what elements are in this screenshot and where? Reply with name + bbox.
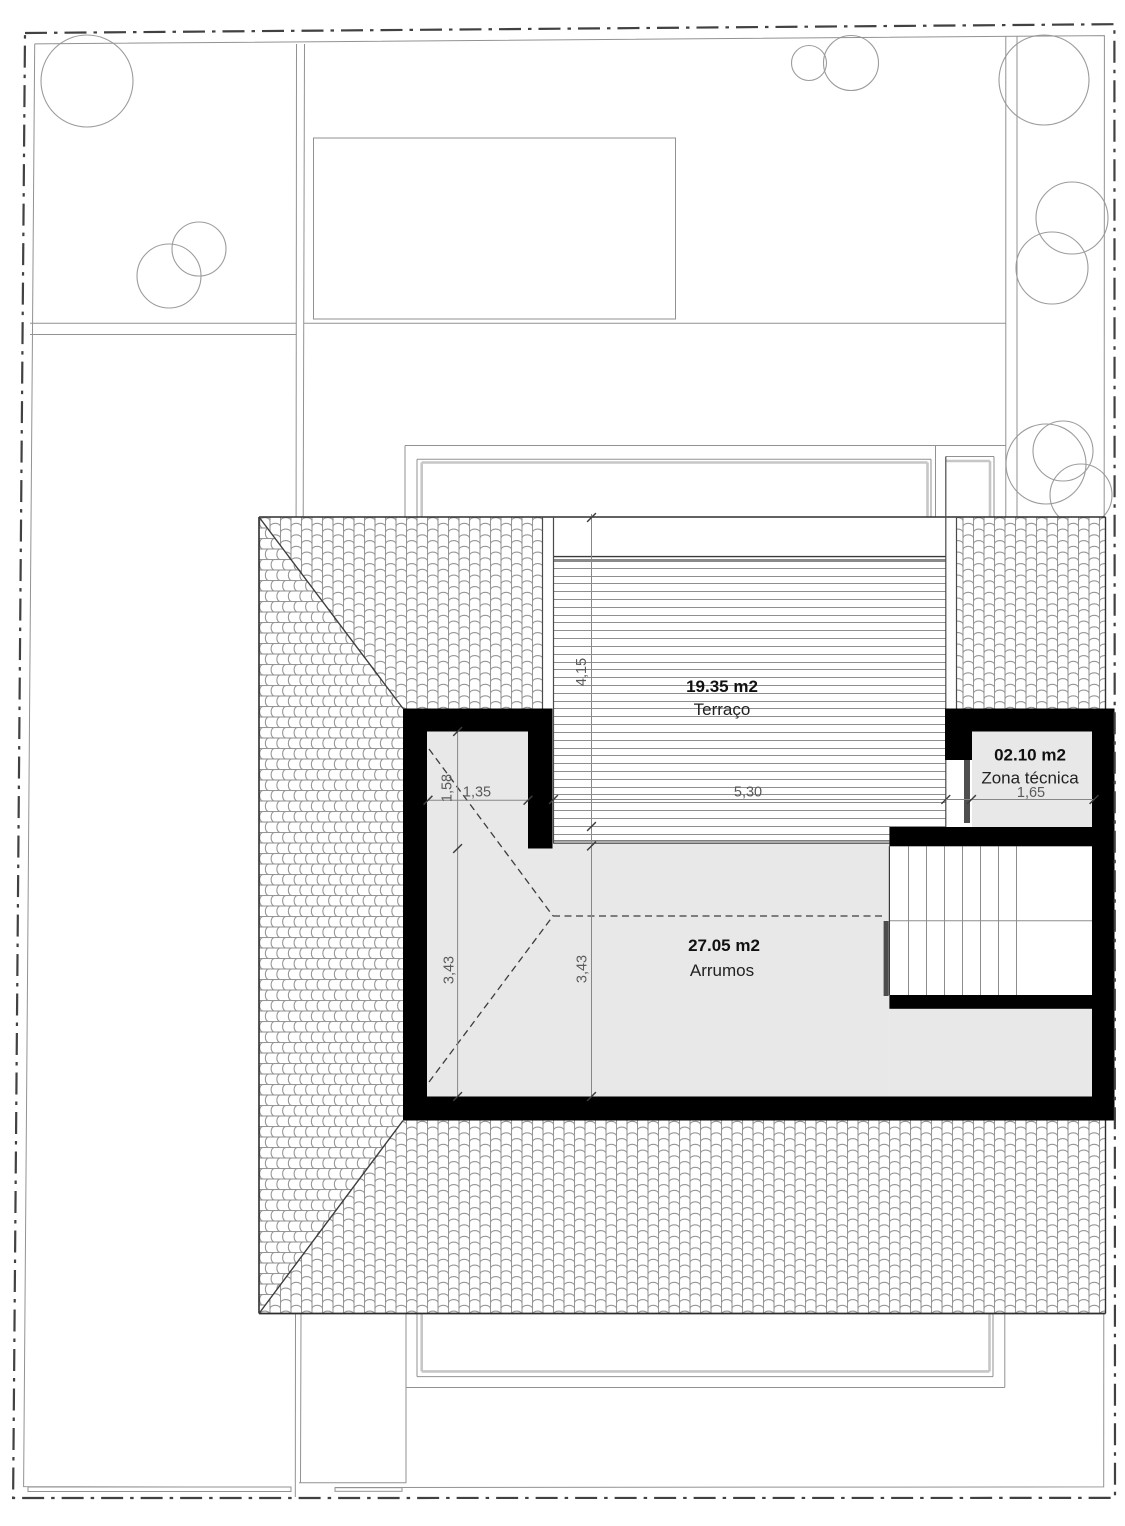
svg-text:27.05 m2: 27.05 m2 <box>688 936 760 955</box>
svg-text:5,30: 5,30 <box>734 785 762 801</box>
svg-text:19.35 m2: 19.35 m2 <box>686 677 758 696</box>
svg-text:Arrumos: Arrumos <box>690 961 754 980</box>
svg-text:3,43: 3,43 <box>442 956 458 984</box>
svg-text:02.10 m2: 02.10 m2 <box>994 746 1066 765</box>
svg-text:1,35: 1,35 <box>463 785 491 801</box>
svg-text:3,43: 3,43 <box>575 955 591 983</box>
svg-text:1,65: 1,65 <box>1017 785 1045 801</box>
svg-text:1,58: 1,58 <box>440 774 456 802</box>
svg-text:Terraço: Terraço <box>694 700 751 719</box>
svg-text:4,15: 4,15 <box>574 658 590 686</box>
